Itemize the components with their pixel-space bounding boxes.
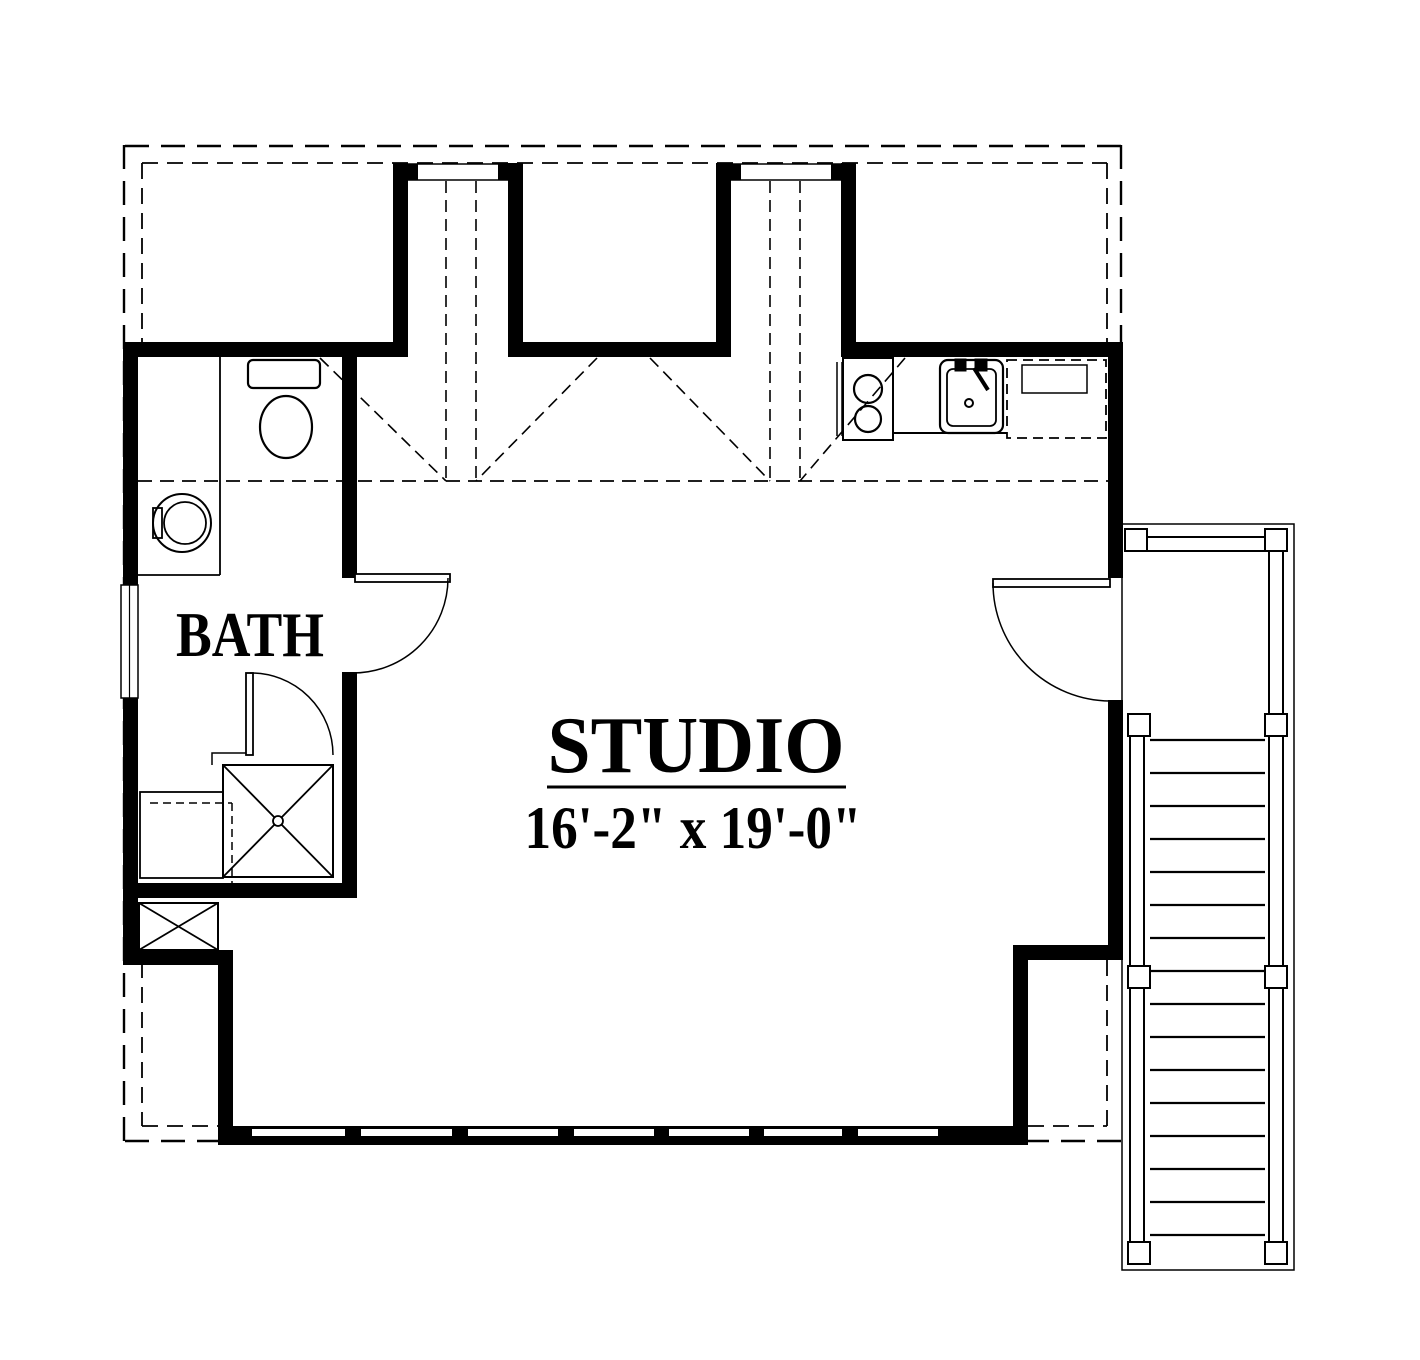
window [252,1129,345,1136]
paper-background [0,0,1420,1360]
faucet [955,359,966,371]
wall-segment [123,698,138,965]
wall-segment [138,883,357,898]
wall-segment [123,342,138,585]
rail-post [1265,529,1287,551]
window [574,1129,654,1136]
rail-post [1125,529,1147,551]
dormer-wall [508,163,523,357]
rail-post [1265,714,1287,736]
wall-segment [1013,945,1123,960]
rail-post [1265,966,1287,988]
rail-post [1128,966,1150,988]
wall-segment [123,342,393,357]
floor-plan-drawing: BATH STUDIO 16'-2" x 19'-0" [0,0,1420,1360]
wall-segment [123,950,233,965]
floor-plan-page: BATH STUDIO 16'-2" x 19'-0" [0,0,1420,1360]
window [361,1129,452,1136]
west-window [121,585,138,698]
rail-post [1265,1242,1287,1264]
wall-segment [523,342,716,357]
window [764,1129,842,1136]
wall-segment [1108,357,1123,578]
rail-post [1128,714,1150,736]
wall-segment [342,357,357,578]
dormer-wall [841,163,856,357]
wall-segment [342,672,357,898]
window [669,1129,749,1136]
dormer-wall [393,163,408,357]
wall-segment [1108,700,1123,960]
window [468,1129,558,1136]
window [858,1129,938,1136]
shower-drain [273,816,283,826]
bath-label: BATH [176,599,324,670]
wall-segment [1013,960,1028,1145]
studio-dimensions: 16'-2" x 19'-0" [525,795,862,861]
dormer-2-window [731,164,841,180]
dormer-1-window [408,164,508,180]
studio-label: STUDIO [548,702,845,790]
rail-post [1128,1242,1150,1264]
dormer-wall [716,163,731,357]
wall-segment [218,950,233,1145]
wall-segment [856,342,1123,357]
